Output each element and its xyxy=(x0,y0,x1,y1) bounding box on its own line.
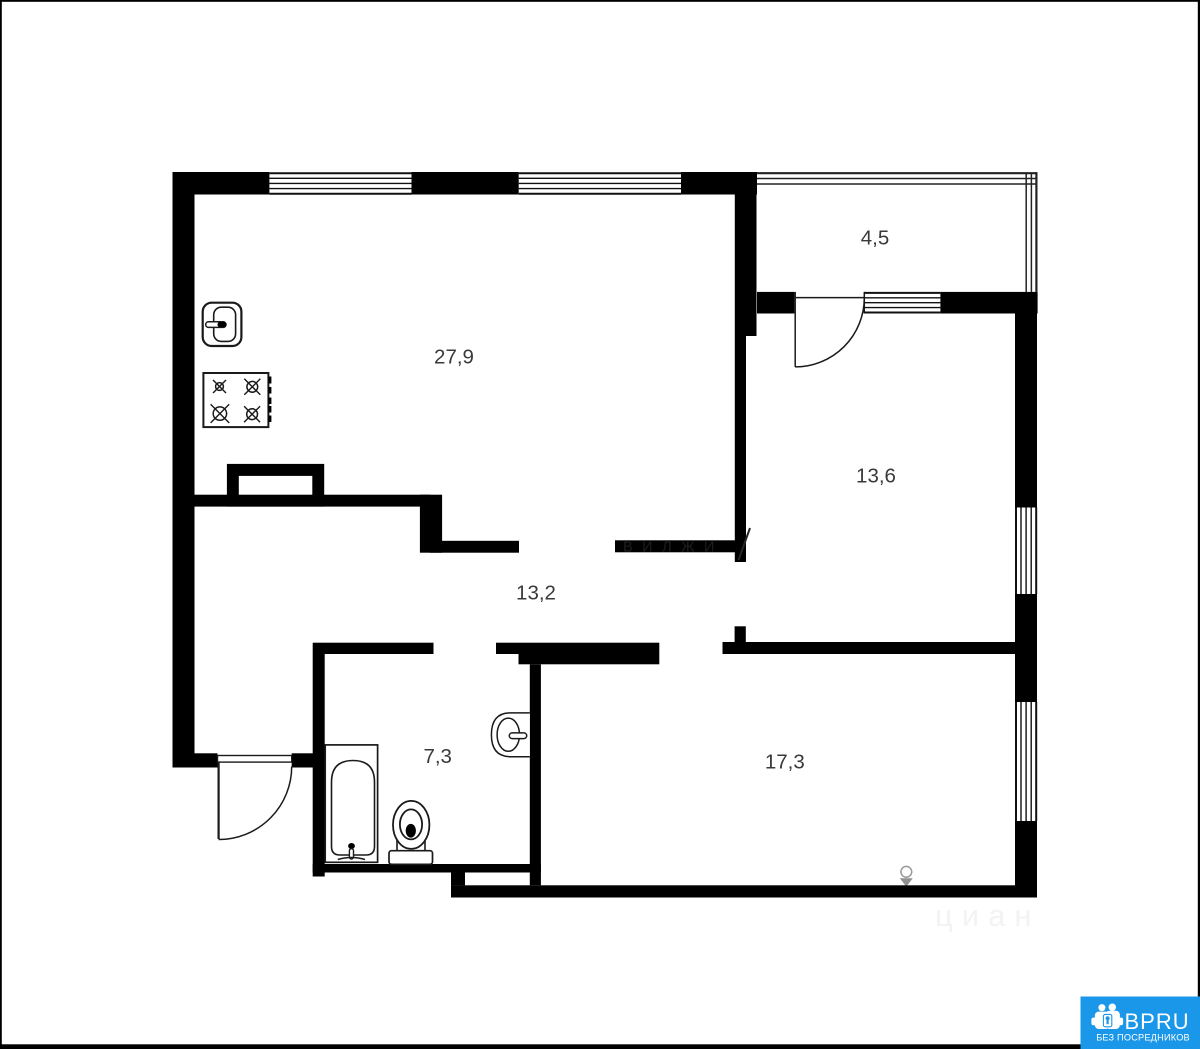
svg-text:13,6: 13,6 xyxy=(856,465,896,488)
svg-text:БЕЗ ПОСРЕДНИКОВ: БЕЗ ПОСРЕДНИКОВ xyxy=(1096,1032,1190,1042)
svg-text:27,9: 27,9 xyxy=(434,345,474,368)
svg-text:циан: циан xyxy=(935,898,1040,933)
svg-text:ВИЛЖИ: ВИЛЖИ xyxy=(623,540,724,556)
svg-text:13,2: 13,2 xyxy=(516,582,556,605)
svg-text:BPRU: BPRU xyxy=(1125,1009,1190,1034)
svg-text:4,5: 4,5 xyxy=(861,227,890,250)
svg-text:7,3: 7,3 xyxy=(423,745,452,768)
svg-text:17,3: 17,3 xyxy=(765,750,805,773)
